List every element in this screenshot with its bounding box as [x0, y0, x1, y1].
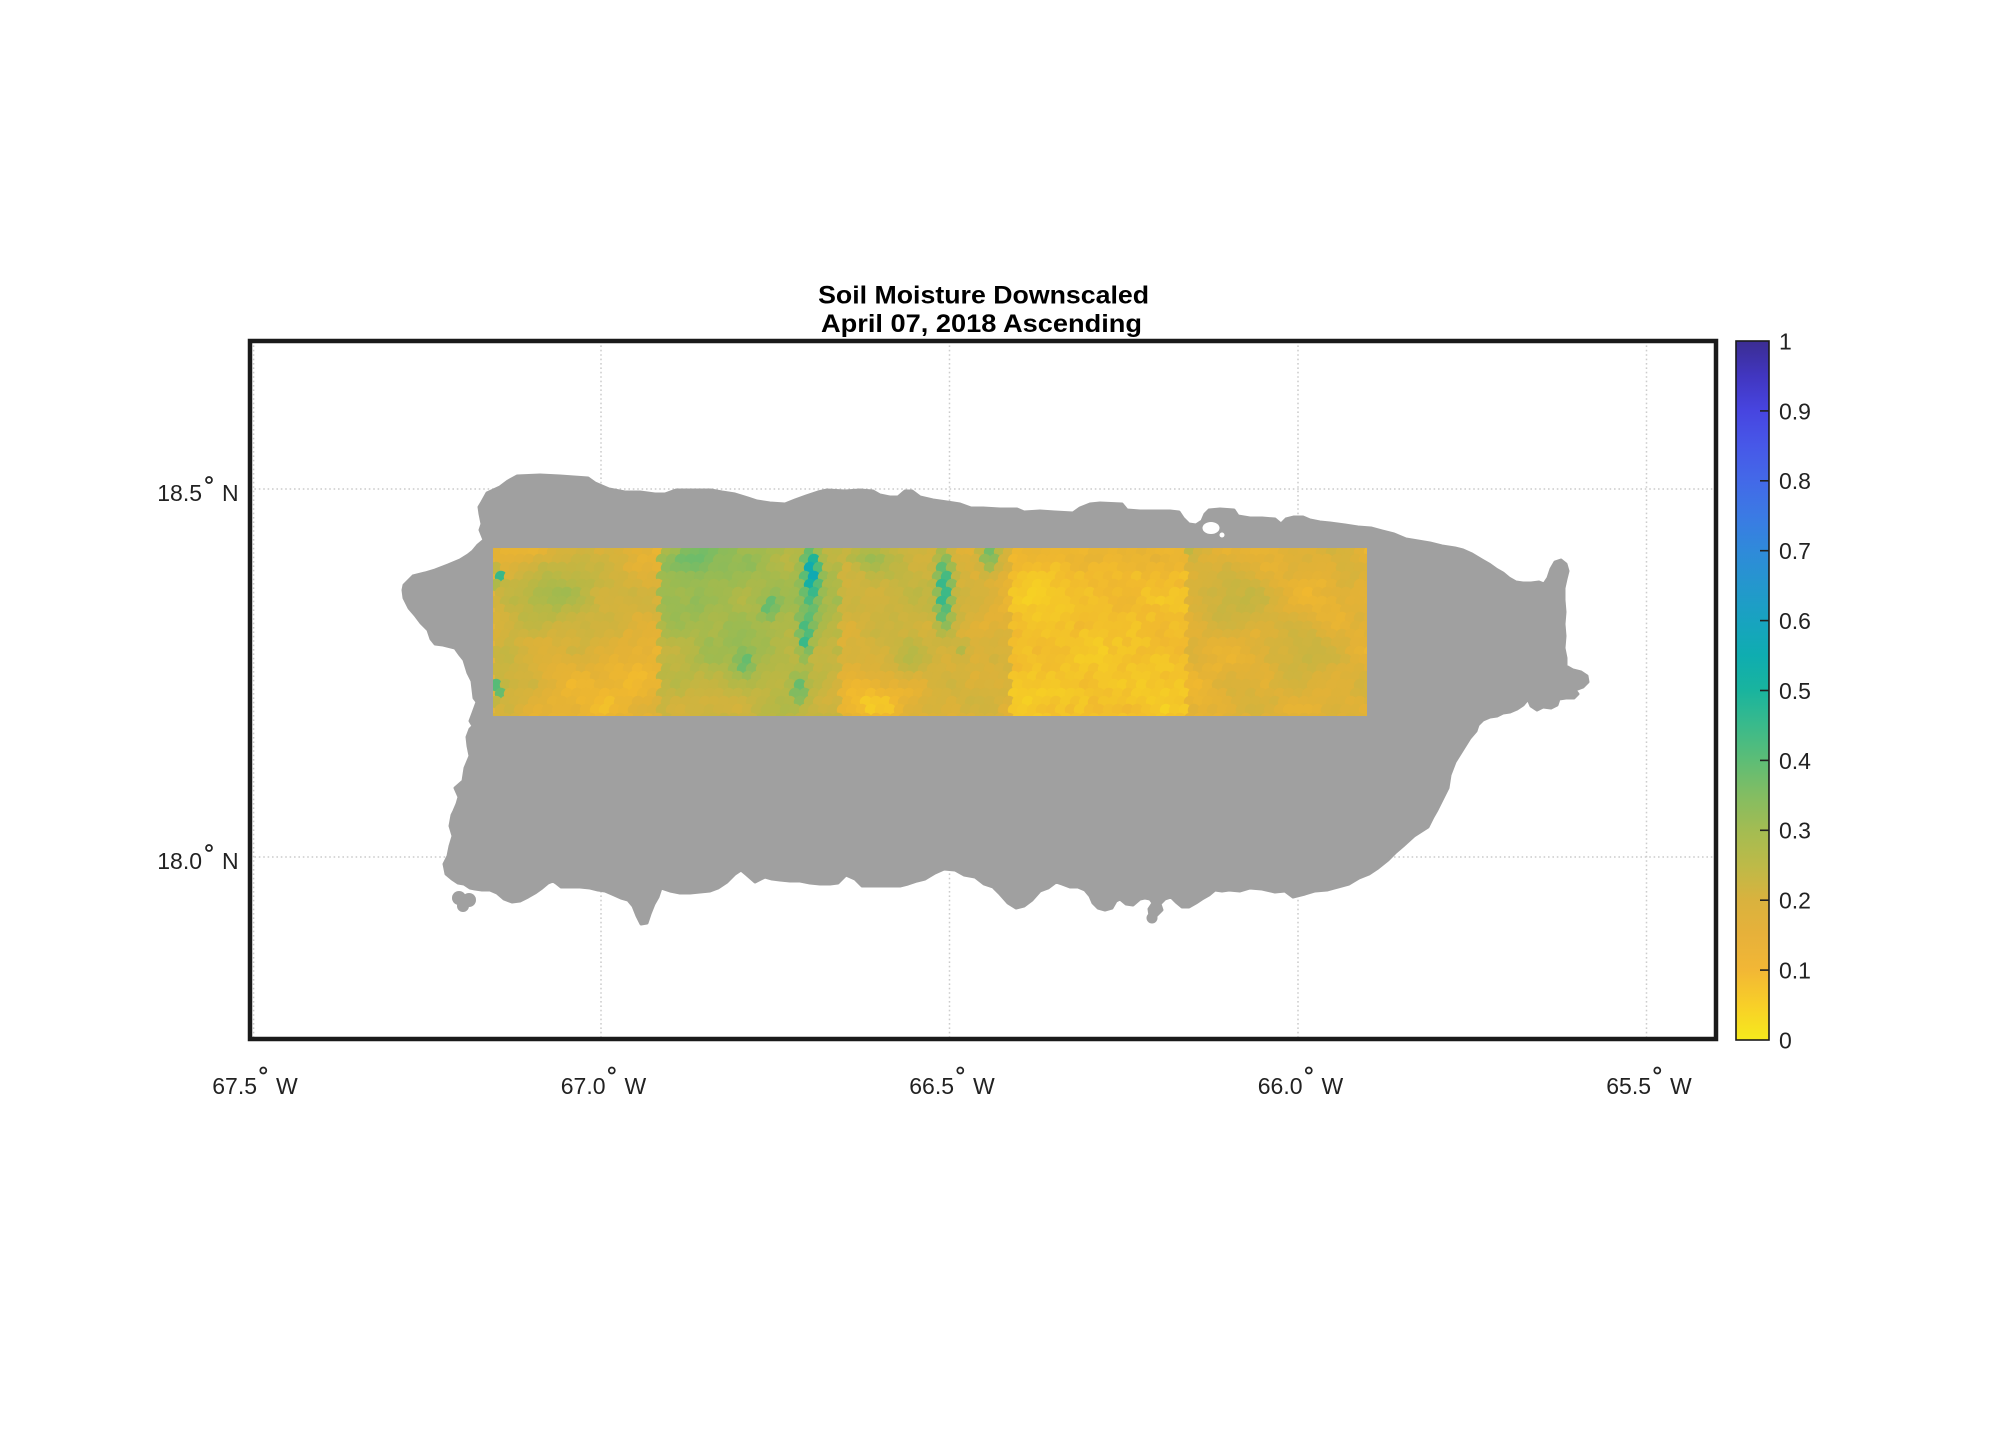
svg-text:W: W — [1322, 1073, 1344, 1099]
svg-text:W: W — [973, 1073, 995, 1099]
svg-text:65.5: 65.5 — [1606, 1073, 1651, 1099]
svg-text:1: 1 — [1779, 328, 1792, 354]
svg-text:0: 0 — [1779, 1027, 1792, 1053]
svg-text:Soil Moisture Downscaled: Soil Moisture Downscaled — [818, 282, 1149, 310]
svg-text:0.2: 0.2 — [1779, 888, 1811, 914]
svg-text:W: W — [1670, 1073, 1692, 1099]
svg-text:0.9: 0.9 — [1779, 398, 1811, 424]
svg-text:0.3: 0.3 — [1779, 818, 1811, 844]
svg-text:66.0: 66.0 — [1258, 1073, 1303, 1099]
svg-text:April 07, 2018 Ascending: April 07, 2018 Ascending — [821, 310, 1142, 338]
svg-text:0.5: 0.5 — [1779, 678, 1811, 704]
svg-text:0.6: 0.6 — [1779, 608, 1811, 634]
svg-text:0.1: 0.1 — [1779, 958, 1811, 984]
svg-text:0.8: 0.8 — [1779, 468, 1811, 494]
svg-text:W: W — [625, 1073, 647, 1099]
svg-text:0.4: 0.4 — [1779, 748, 1811, 774]
svg-text:W: W — [276, 1073, 298, 1099]
svg-text:66.5: 66.5 — [909, 1073, 954, 1099]
svg-text:0.7: 0.7 — [1779, 538, 1811, 564]
svg-text:18.0: 18.0 — [157, 848, 202, 874]
svg-text:18.5: 18.5 — [157, 480, 202, 506]
svg-text:N: N — [222, 848, 239, 874]
svg-text:67.0: 67.0 — [561, 1073, 606, 1099]
svg-text:N: N — [222, 480, 239, 506]
svg-text:67.5: 67.5 — [212, 1073, 257, 1099]
